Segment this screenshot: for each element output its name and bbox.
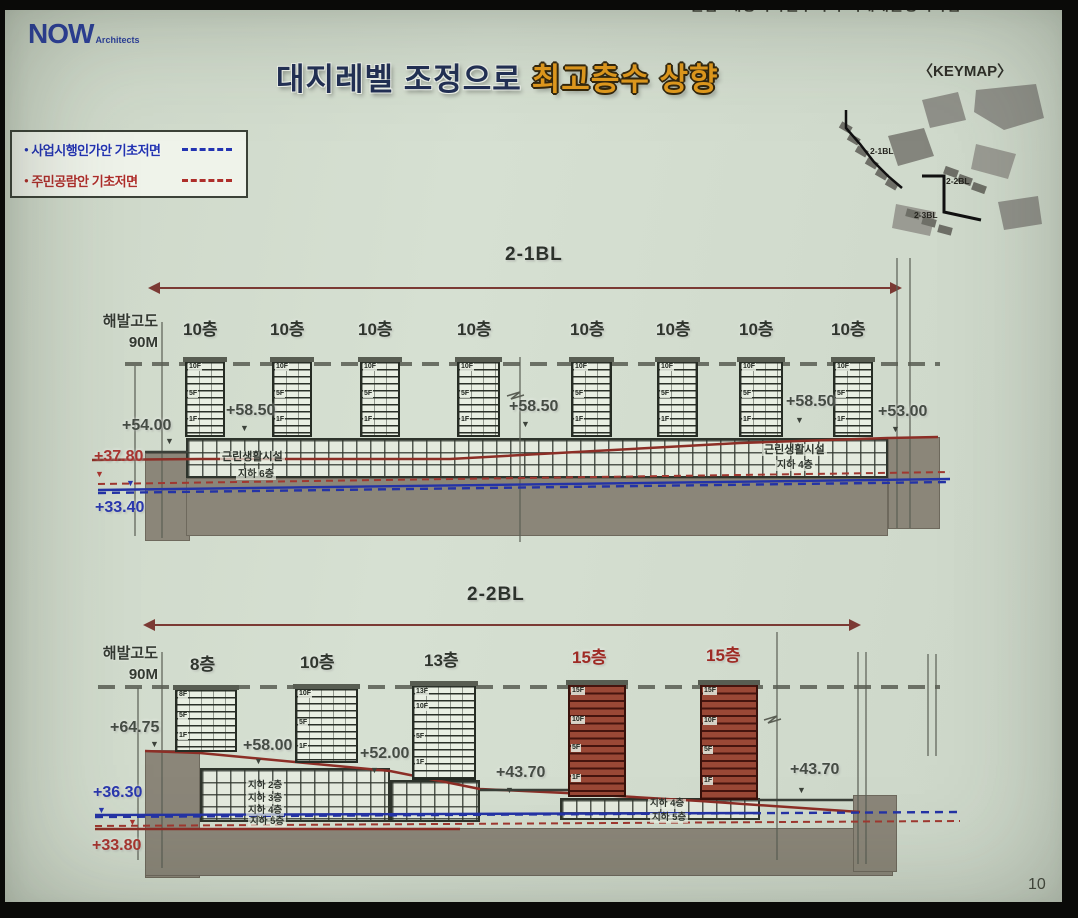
level-marker-icon: ▼ — [165, 437, 174, 446]
elevation-label: +58.50 — [509, 398, 558, 416]
legend-box: ● 사업시행인가안 기초저면 ● 주민공람안 기초저면 — [10, 130, 248, 198]
presentation-slide: NOWArchitects 한남2재정비촉진구역 주택재개발정비사업 대지레벨 … — [0, 0, 1078, 918]
legend-red-dashed-line — [182, 179, 232, 182]
level-marker-icon: ▼ — [95, 470, 104, 479]
floor-count-label: 8층 — [190, 650, 215, 675]
floor-count-label: 10층 — [457, 315, 492, 340]
level-marker-icon: ▼ — [797, 786, 806, 795]
annotation-text: 근린생활시설 — [220, 451, 285, 463]
level-marker-icon: ▼ — [240, 424, 249, 433]
legend-bullet-icon: ● — [24, 176, 28, 185]
floor-count-label: 15층 — [572, 643, 607, 668]
elevation-label: +36.30 — [93, 784, 142, 802]
sea-level-value: 90M — [78, 332, 158, 353]
elevation-label: +58.00 — [243, 737, 292, 755]
annotation-text: 지하 4층 — [775, 460, 815, 471]
elevation-label: +64.75 — [110, 719, 159, 737]
elevation-label: +33.40 — [95, 499, 144, 517]
sea-level-text: 해발고도 — [78, 311, 158, 332]
floor-count-label: 10층 — [270, 315, 305, 340]
sea-level-value: 90M — [78, 664, 158, 685]
legend-item-approved: ● 사업시행인가안 기초저면 — [24, 140, 236, 159]
legend-bullet-icon: ● — [24, 145, 28, 154]
level-marker-icon: ▼ — [521, 420, 530, 429]
sea-level-text: 해발고도 — [78, 643, 158, 664]
floor-count-label: 10층 — [300, 648, 335, 673]
legend-blue-dashed-line — [182, 148, 232, 151]
elevation-label: +58.50 — [226, 402, 275, 420]
logo-now-text: NOW — [28, 18, 93, 49]
elevation-label: +43.70 — [790, 761, 839, 779]
floor-count-label: 10층 — [183, 315, 218, 340]
annotation-text: 지하 2층 — [246, 781, 284, 791]
slide-title: 대지레벨 조정으로최고층수 상향 — [276, 54, 719, 99]
level-marker-icon: ▼ — [795, 416, 804, 425]
floor-count-label: 13층 — [424, 646, 459, 671]
level-marker-icon: ▼ — [370, 766, 379, 775]
screen-border-right — [1062, 0, 1078, 918]
elevation-label: +33.80 — [92, 837, 141, 855]
level-marker-icon: ▼ — [150, 740, 159, 749]
annotation-text: 지하 5층 — [248, 817, 286, 827]
block-span-label: 2-2BL — [467, 584, 525, 606]
sea-level-label: 해발고도90M — [78, 643, 158, 685]
level-marker-icon: ▼ — [126, 479, 135, 488]
now-architects-logo: NOWArchitects — [28, 18, 139, 50]
annotation-text: 지하 5층 — [650, 813, 688, 823]
floor-count-label: 10층 — [656, 315, 691, 340]
elevation-label: +43.70 — [496, 764, 545, 782]
level-marker-icon: ▼ — [505, 786, 514, 795]
screen-border-bottom — [0, 902, 1078, 918]
level-marker-icon: ▼ — [128, 818, 137, 827]
level-marker-icon: ▼ — [891, 425, 900, 434]
floor-count-label: 10층 — [831, 315, 866, 340]
annotation-text: 지하 3층 — [246, 794, 284, 804]
screen-border-top — [0, 0, 1078, 10]
elevation-label: +52.00 — [360, 745, 409, 763]
elevation-label: +54.00 — [122, 417, 171, 435]
elevation-label: +53.00 — [878, 403, 927, 421]
block-span-label: 2-1BL — [505, 244, 563, 266]
elevation-label: +37.80 — [94, 448, 143, 466]
logo-architects-text: Architects — [95, 35, 139, 45]
sea-level-label: 해발고도90M — [78, 311, 158, 353]
annotation-text: 근린생활시설 — [762, 444, 827, 456]
elevation-label: +58.50 — [786, 393, 835, 411]
legend-item-label: 주민공람안 기초저면 — [31, 171, 137, 190]
annotation-text: 지하 4층 — [648, 799, 686, 809]
level-marker-icon: ▼ — [254, 757, 263, 766]
page-number: 10 — [1028, 876, 1046, 894]
floor-count-label: 10층 — [570, 315, 605, 340]
level-marker-icon: ▼ — [97, 806, 106, 815]
annotation-text: 지하 4층 — [246, 806, 284, 816]
floor-count-label: 10층 — [739, 315, 774, 340]
slide-title-highlight: 최고층수 상향 — [532, 62, 719, 97]
slide-title-normal: 대지레벨 조정으로 — [276, 62, 522, 97]
annotation-text: 지하 6층 — [236, 469, 276, 480]
legend-item-label: 사업시행인가안 기초저면 — [31, 140, 160, 159]
floor-count-label: 15층 — [706, 641, 741, 666]
floor-count-label: 10층 — [358, 315, 393, 340]
legend-item-public-review: ● 주민공람안 기초저면 — [24, 171, 236, 190]
screen-border-left — [0, 0, 5, 918]
keymap-title: 〈KEYMAP〉 — [918, 60, 1012, 81]
